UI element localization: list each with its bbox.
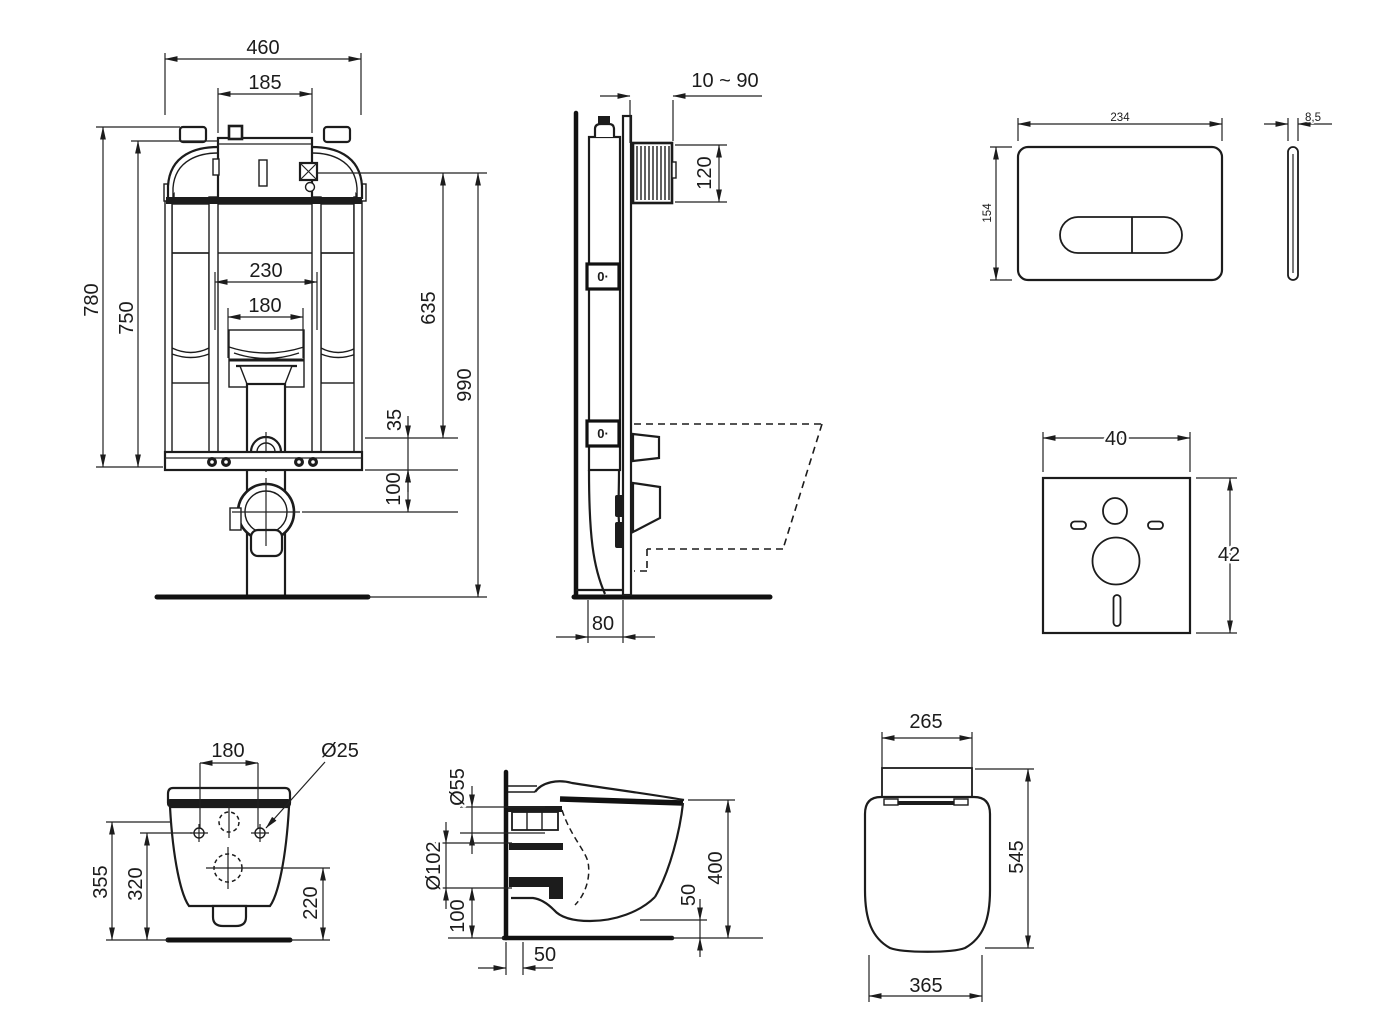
dim-frame-depth: 80 xyxy=(592,613,614,635)
mesh-right xyxy=(321,253,354,383)
fixing-marker-box-lower: 0· xyxy=(587,421,619,446)
drain-bend xyxy=(230,470,300,595)
seat-body xyxy=(865,797,990,952)
dim-outlet-diameter: Ø102 xyxy=(423,842,445,891)
dim-height-outlet: 220 xyxy=(300,886,322,919)
seat-view: 265 545 365 xyxy=(865,711,1034,1002)
dim-seat-depth: 545 xyxy=(1006,840,1028,873)
sound-mat-view: 40 42 xyxy=(1043,428,1240,633)
water-arc-right xyxy=(321,348,356,358)
bowl-outlet-spigot xyxy=(213,906,246,926)
seat-hinge-tab xyxy=(882,768,972,798)
mat-outline xyxy=(1043,478,1190,633)
bowl-profile xyxy=(508,781,684,921)
tank-shoulder-left xyxy=(168,147,218,199)
overflow-slot xyxy=(259,160,267,186)
tank-bottom-bar xyxy=(166,197,362,204)
fixing-marker-label: 0· xyxy=(597,269,609,284)
water-arc-center xyxy=(229,347,304,359)
dim-outlet-height: 100 xyxy=(447,899,469,932)
dim-wall-distance: 50 xyxy=(534,944,556,966)
frame-rail-right xyxy=(354,197,362,470)
seat-hinge-left xyxy=(884,799,898,805)
frame-front-rail xyxy=(623,116,631,595)
mesh-band xyxy=(172,204,354,253)
dim-hole-spacing: 180 xyxy=(211,740,244,762)
dim-pipe-guide-spacing: 180 xyxy=(248,295,281,317)
dim-bend-offset: 35 xyxy=(384,409,406,431)
mesh-left xyxy=(172,253,209,383)
dim-plate-height: 154 xyxy=(982,203,994,223)
dim-seat-width: 365 xyxy=(909,975,942,997)
frame-rail-left xyxy=(165,197,172,470)
inspection-box xyxy=(633,143,676,203)
dim-tank-height: 750 xyxy=(116,301,138,334)
dim-drain-height: 100 xyxy=(383,472,405,505)
cistern-side-view: 0· 0· 10 ~ xyxy=(556,70,822,643)
seat-hinge-right xyxy=(954,799,968,805)
dim-top-opening: 185 xyxy=(248,72,281,94)
bowl-dashed-outline xyxy=(634,424,822,571)
flush-plate-view: 234 154 8,5 xyxy=(982,112,1332,280)
bowl-rim-band xyxy=(167,799,291,807)
bowl-side-view: Ø55 Ø102 100 50 50 400 xyxy=(423,768,763,975)
fixing-marker-label: 0· xyxy=(597,426,609,441)
dim-rim-height: 400 xyxy=(705,851,727,884)
dim-height-top-hole: 355 xyxy=(90,865,112,898)
dim-total-height: 990 xyxy=(454,368,476,401)
dim-plate-width: 234 xyxy=(1110,112,1130,124)
dim-mat-width: 40 xyxy=(1105,428,1127,450)
dim-bottom-clearance: 50 xyxy=(678,884,700,906)
drawing-svg: 460 185 780 750 230 180 635 990 35 100 xyxy=(0,0,1400,1034)
bowl-rear-view: 180 Ø25 355 320 220 xyxy=(90,740,359,940)
flush-button xyxy=(1060,217,1182,253)
tank-tab-left xyxy=(180,127,206,142)
dim-mat-height: 42 xyxy=(1218,544,1240,566)
dim-valve-to-bend: 635 xyxy=(418,291,440,324)
bracket-upper xyxy=(633,434,659,461)
rail-inner-left xyxy=(209,197,218,455)
dim-inspection-height: 120 xyxy=(694,156,716,189)
technical-drawing-canvas: 460 185 780 750 230 180 635 990 35 100 xyxy=(0,0,1400,1034)
water-arc-left xyxy=(172,348,209,358)
dim-hole-diameter: Ø25 xyxy=(321,740,359,762)
dim-hinge-width: 265 xyxy=(909,711,942,733)
tank-tab-right xyxy=(324,127,350,142)
cistern-front-view: 460 185 780 750 230 180 635 990 35 100 xyxy=(81,37,487,597)
bracket-lower xyxy=(633,483,660,532)
frame-bottom-rail xyxy=(165,452,362,470)
dim-height-fixing-holes: 320 xyxy=(125,867,147,900)
shaft-tab xyxy=(229,126,242,139)
dim-frame-height: 780 xyxy=(81,283,103,316)
dim-wall-range: 10 ~ 90 xyxy=(691,70,758,92)
flush-plate-face xyxy=(1018,147,1222,280)
dim-inlet-diameter: Ø55 xyxy=(447,768,469,806)
dim-rail-spacing: 230 xyxy=(249,260,282,282)
dim-total-width: 460 xyxy=(246,37,279,59)
dim-plate-thickness: 8,5 xyxy=(1305,112,1321,124)
fixing-marker-box-upper: 0· xyxy=(587,264,619,289)
